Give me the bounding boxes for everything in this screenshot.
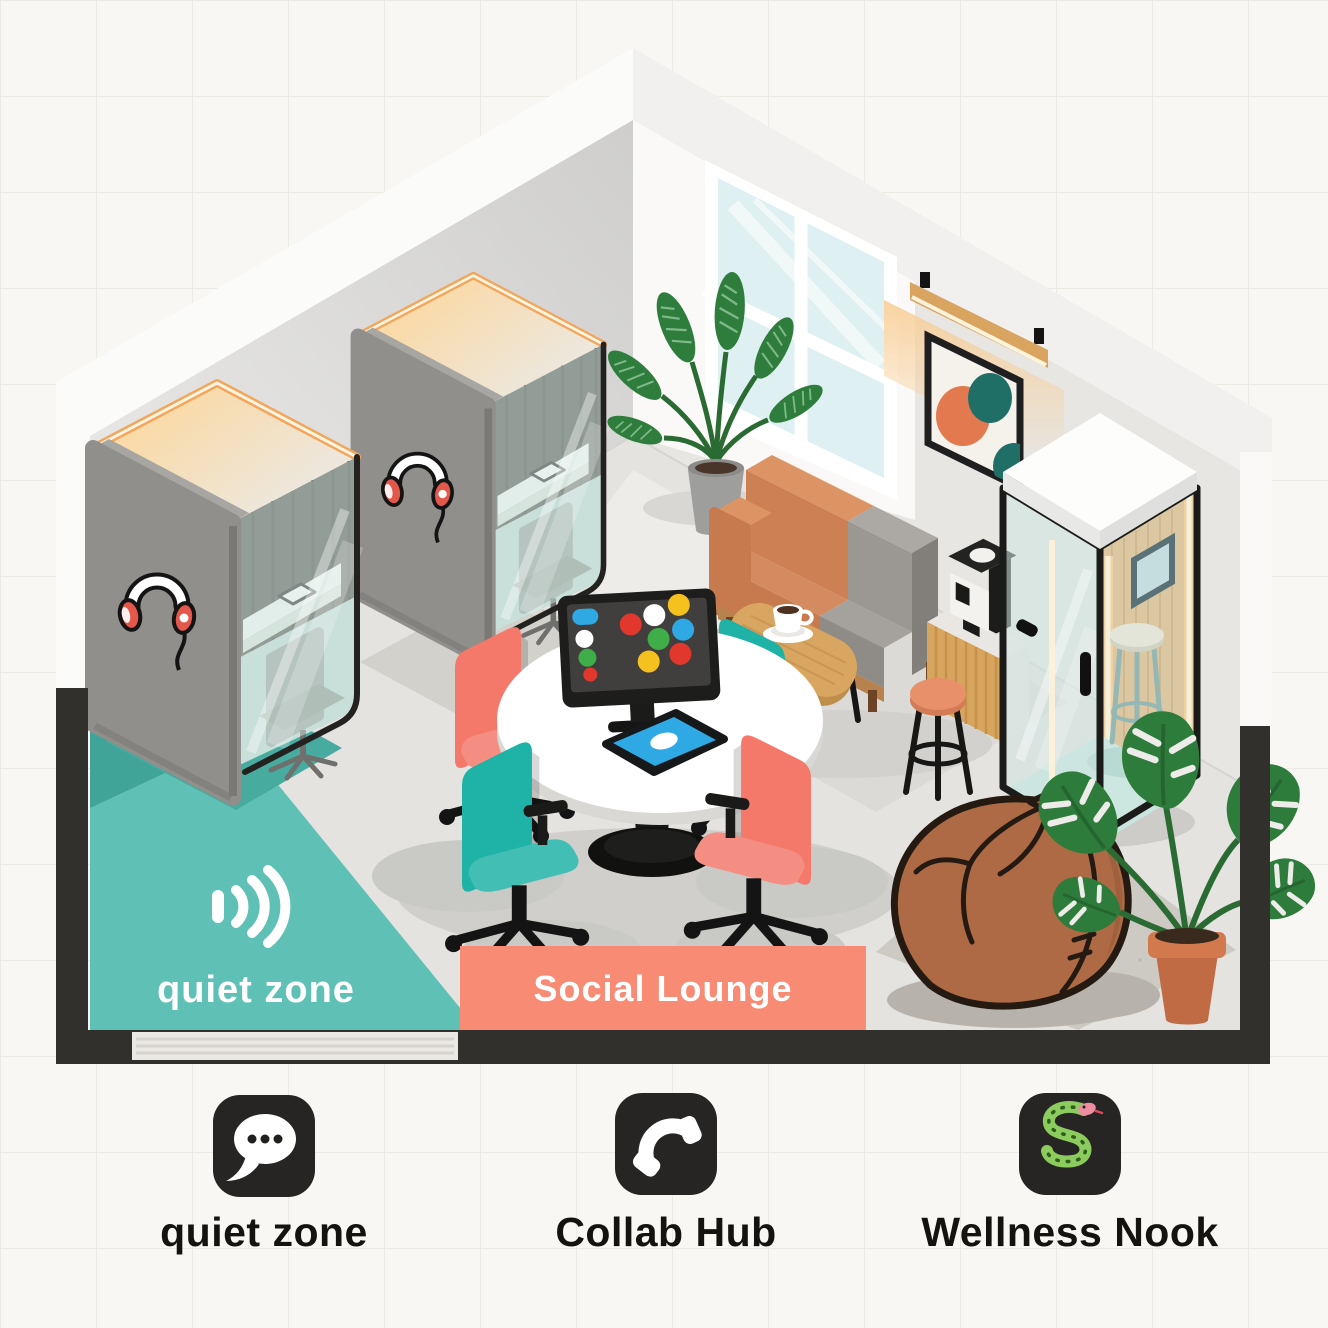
left-wall-pillar — [56, 410, 90, 700]
right-wall-pillar — [1240, 452, 1272, 732]
baseboard — [132, 1032, 458, 1060]
legend-label-collab-hub: Collab Hub — [555, 1209, 776, 1255]
social-lounge-banner: Social Lounge — [460, 946, 866, 1030]
booth-door-handle — [1080, 652, 1091, 696]
legend-label-quiet-zone: quiet zone — [160, 1209, 368, 1255]
quiet-zone-floor-label: quiet zone — [157, 969, 355, 1011]
legend-label-wellness-nook: Wellness Nook — [921, 1209, 1218, 1255]
social-lounge-label: Social Lounge — [533, 968, 792, 1009]
privacy-pod-1 — [93, 383, 357, 798]
plant-pot — [1156, 954, 1218, 1025]
office-zones-illustration: quiet zone — [0, 0, 1328, 1328]
